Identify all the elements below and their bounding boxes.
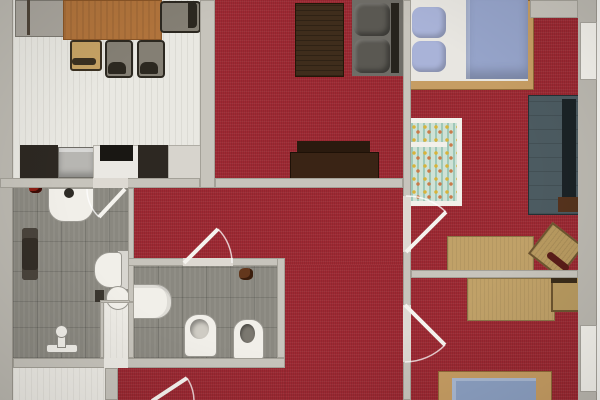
floor-plan bbox=[0, 0, 600, 400]
entry-niche-floor bbox=[104, 302, 128, 358]
bidet-bowl bbox=[190, 319, 209, 339]
wall-entry-vertical bbox=[105, 368, 118, 400]
bed2-mattress bbox=[452, 378, 536, 400]
dining-table bbox=[63, 0, 162, 40]
dining-chair-gray-2-feet bbox=[140, 62, 158, 74]
wardrobe-brown-edge bbox=[558, 197, 578, 212]
bottom-left-floor bbox=[13, 368, 105, 400]
wall-top-right-band bbox=[530, 0, 578, 18]
doorway-bedroom2 bbox=[403, 305, 411, 362]
crib bbox=[406, 118, 462, 206]
dining-chair-right-back bbox=[188, 2, 197, 28]
desk-bedroom2 bbox=[467, 278, 555, 321]
living-rug bbox=[295, 3, 344, 77]
doorway-bathroom2 bbox=[183, 258, 233, 266]
doorway-bathroom1 bbox=[93, 178, 128, 188]
kitchen-sink-unit bbox=[58, 147, 95, 178]
outer-wall-left bbox=[0, 0, 13, 400]
window-right-bottom bbox=[580, 325, 597, 392]
brown-stool-item bbox=[239, 268, 253, 280]
sideboard-divider-line bbox=[27, 0, 30, 35]
wall-bathroom1-right bbox=[128, 188, 134, 302]
hallway-floor-bottom bbox=[118, 368, 285, 400]
wall-bathroom2-left bbox=[128, 302, 134, 358]
hallway-floor-right bbox=[285, 265, 403, 400]
living-sideboard-step bbox=[297, 141, 370, 152]
bathtub bbox=[133, 284, 172, 319]
sofa-cushion-2 bbox=[354, 39, 390, 73]
sofa-back-shadow bbox=[391, 3, 399, 73]
window-right-top bbox=[580, 22, 597, 80]
hallway-floor-band bbox=[134, 188, 403, 265]
wall-niche-top bbox=[100, 300, 130, 303]
wall-bathroom2-right bbox=[277, 258, 285, 358]
gray-sideboard bbox=[15, 0, 64, 37]
kitchen-counter-dark-right bbox=[138, 145, 168, 178]
wall-dining-living bbox=[200, 0, 215, 188]
kitchen-counter-dark-left bbox=[20, 145, 58, 178]
desk-bedroom1 bbox=[447, 236, 534, 271]
wall-living-bottom bbox=[215, 178, 403, 188]
dining-chair-wood-back bbox=[72, 58, 96, 65]
wall-niche-left bbox=[100, 302, 104, 358]
crib-rail bbox=[411, 142, 447, 147]
washbasin-faucet bbox=[64, 188, 74, 198]
wall-bedroom-divider bbox=[411, 270, 578, 278]
wall-bathrooms-bottom bbox=[13, 358, 285, 368]
towel-radiator bbox=[22, 228, 38, 280]
shower-head bbox=[55, 325, 68, 338]
wardrobe-dark-panel bbox=[562, 99, 576, 207]
doorway-bedroom1 bbox=[403, 196, 411, 252]
sofa-cushion-1 bbox=[354, 3, 390, 36]
dining-chair-gray-1-feet bbox=[108, 62, 126, 74]
bed-pillow-2 bbox=[412, 41, 446, 72]
bed-mattress bbox=[466, 0, 528, 79]
dining-chair-wood bbox=[70, 40, 102, 71]
cooktop bbox=[100, 145, 133, 161]
toilet2-opening bbox=[240, 324, 255, 343]
doorway-entry-niche bbox=[104, 358, 128, 368]
round-basin bbox=[106, 286, 130, 310]
bed-pillow-1 bbox=[412, 7, 446, 38]
toilet1-bowl bbox=[94, 252, 122, 288]
kitchen-counter-light-right bbox=[168, 145, 202, 180]
